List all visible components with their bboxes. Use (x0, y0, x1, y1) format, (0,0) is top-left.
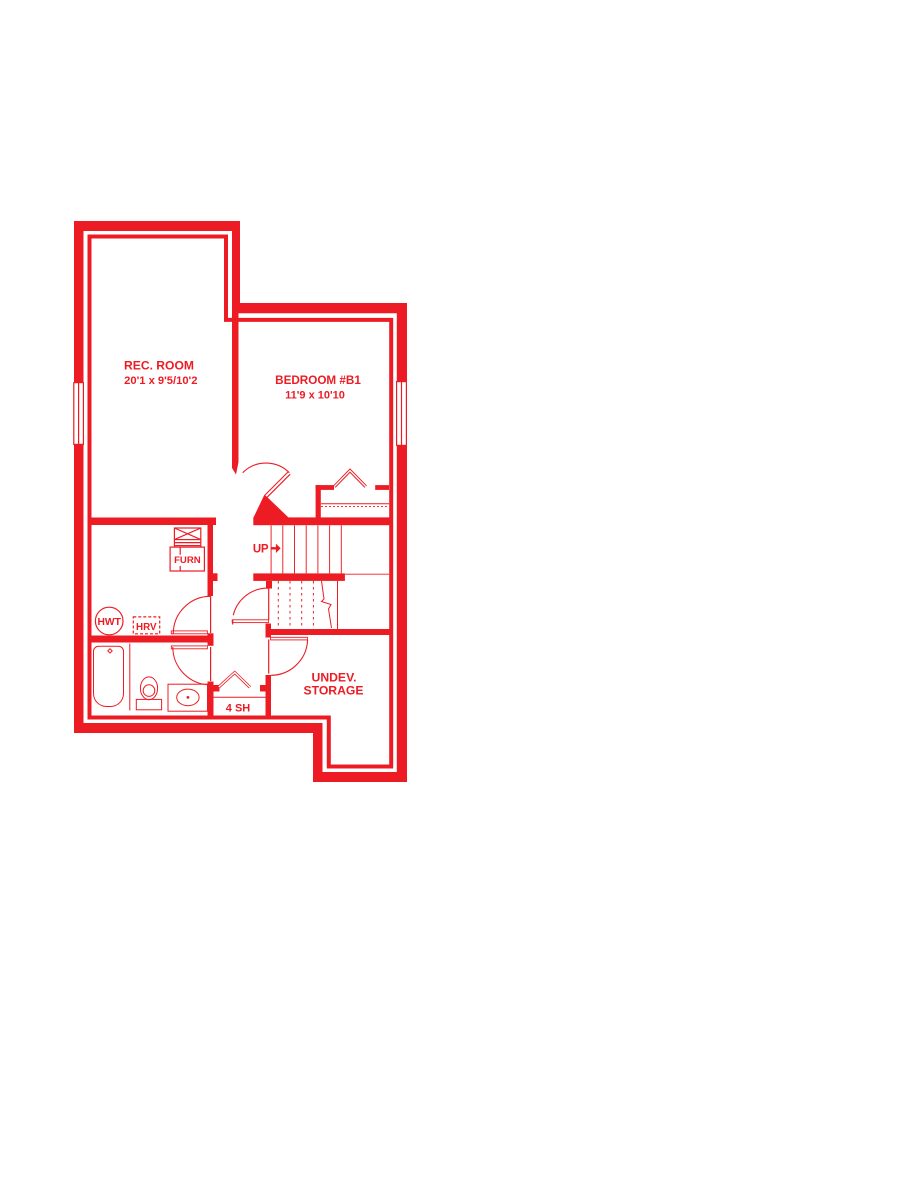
svg-text:20'1 x 9'5/10'2: 20'1 x 9'5/10'2 (124, 375, 197, 387)
svg-text:11'9 x 10'10: 11'9 x 10'10 (285, 389, 345, 401)
svg-text:4 SH: 4 SH (226, 703, 251, 715)
svg-text:FURN: FURN (174, 555, 201, 566)
svg-text:HRV: HRV (136, 622, 157, 633)
svg-text:REC. ROOM: REC. ROOM (124, 358, 194, 372)
svg-text:STORAGE: STORAGE (303, 684, 363, 698)
svg-text:HWT: HWT (97, 617, 121, 628)
svg-text:UNDEV.: UNDEV. (312, 671, 357, 685)
svg-text:UP: UP (253, 543, 269, 555)
svg-text:BEDROOM #B1: BEDROOM #B1 (275, 374, 361, 387)
